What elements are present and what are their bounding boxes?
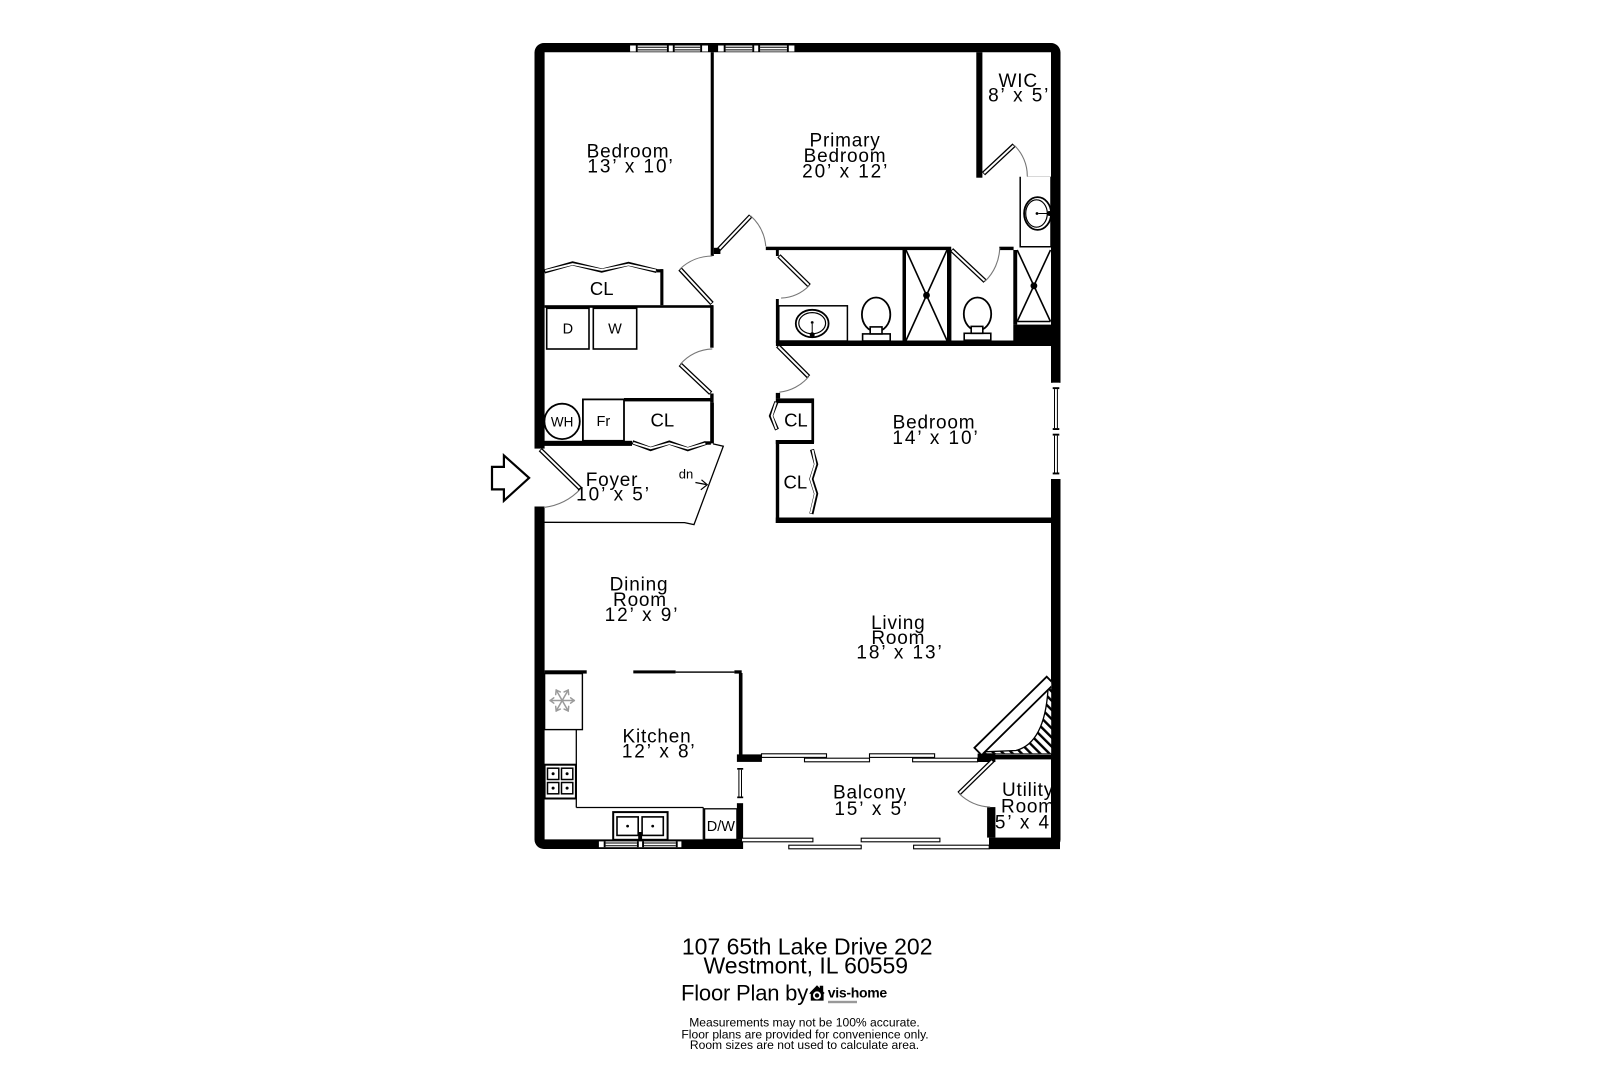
svg-text:CL: CL [784,410,808,431]
svg-text:W: W [608,322,622,338]
svg-text:15’ x 5’: 15’ x 5’ [834,799,909,820]
svg-text:Floor Plan by: Floor Plan by [681,981,808,1006]
svg-text:vis-home: vis-home [828,984,888,1000]
svg-text:20’ x 12’: 20’ x 12’ [802,162,889,183]
svg-text:Room sizes are not used to cal: Room sizes are not used to calculate are… [690,1038,919,1052]
svg-text:CL: CL [783,471,807,492]
svg-text:CL: CL [650,409,674,430]
svg-text:18’ x 13’: 18’ x 13’ [856,643,943,664]
svg-text:WH: WH [551,414,574,429]
svg-text:D: D [563,322,573,338]
svg-text:13’ x 10’: 13’ x 10’ [587,157,674,178]
svg-text:8’ x 5’: 8’ x 5’ [988,86,1050,107]
svg-text:dn: dn [679,467,693,482]
svg-text:CL: CL [590,278,614,299]
svg-text:14’ x 10’: 14’ x 10’ [892,428,979,449]
svg-text:Westmont, IL 60559: Westmont, IL 60559 [704,952,909,978]
svg-text:5’ x 4’: 5’ x 4’ [995,812,1057,833]
svg-text:12’ x 9’: 12’ x 9’ [605,605,680,626]
svg-text:D/W: D/W [707,819,736,835]
svg-text:10’ x 5’: 10’ x 5’ [576,485,651,506]
svg-text:12’ x 8’: 12’ x 8’ [622,741,697,762]
svg-text:Fr: Fr [597,414,611,430]
